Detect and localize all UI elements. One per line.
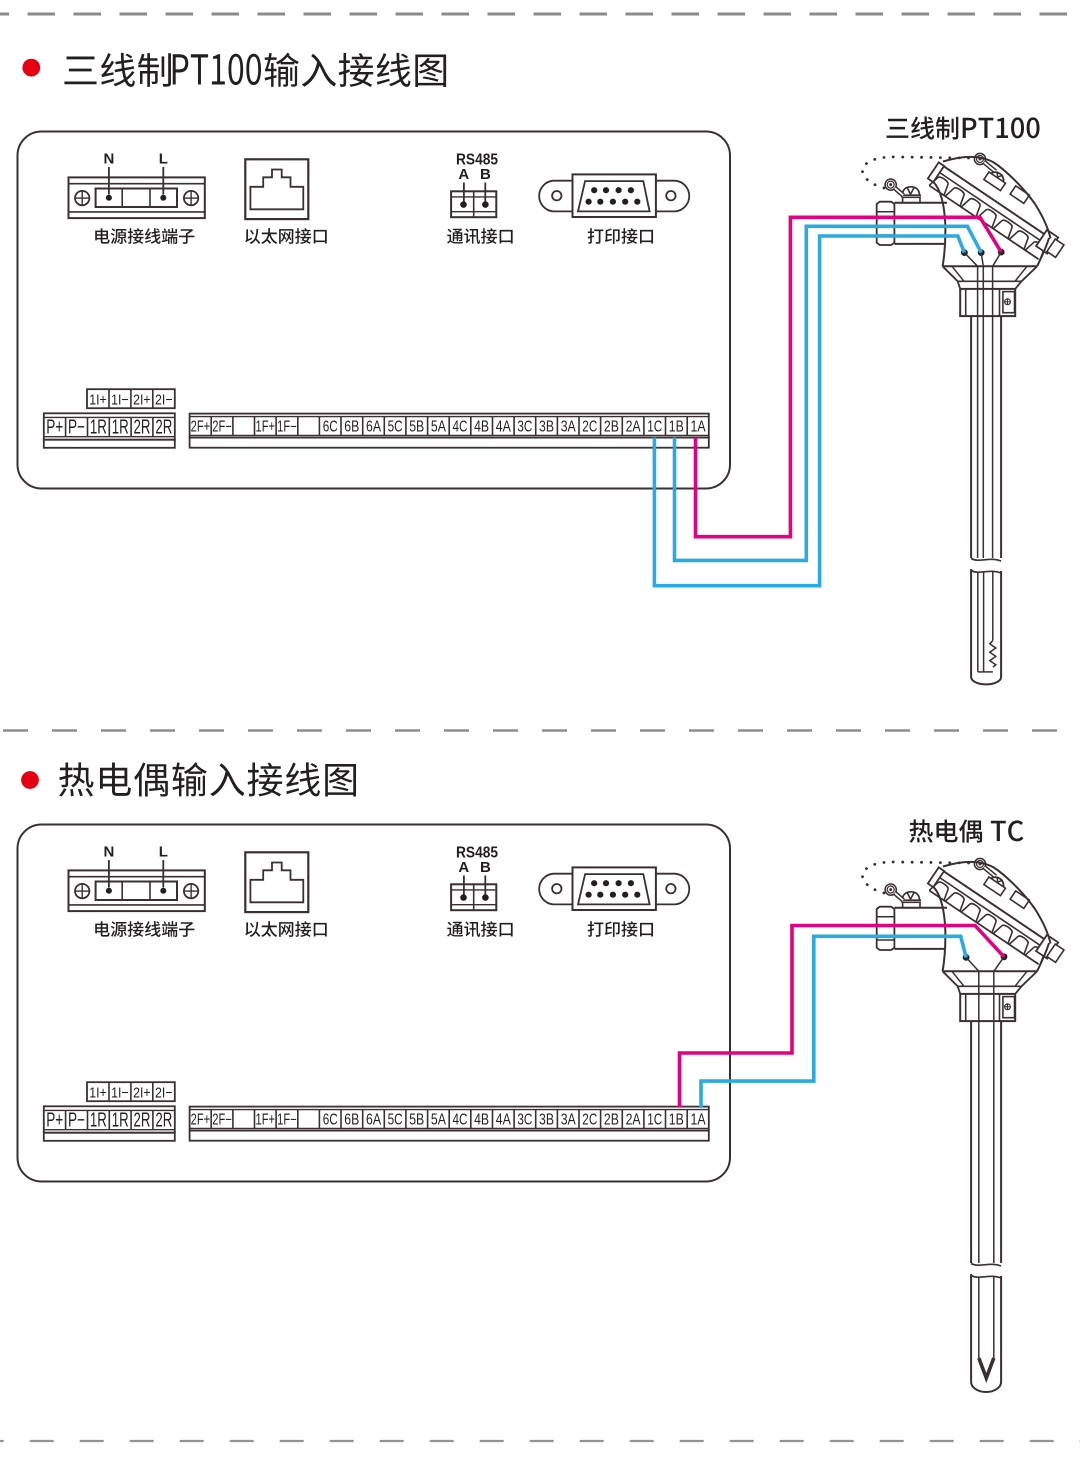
svg-text:1F+: 1F+ [256, 419, 276, 436]
svg-text:A: A [458, 166, 469, 183]
svg-text:6B: 6B [344, 419, 359, 436]
svg-text:2I+: 2I+ [133, 391, 151, 408]
svg-text:6C: 6C [323, 419, 338, 436]
svg-text:2I−: 2I− [155, 391, 173, 408]
svg-text:2I−: 2I− [155, 1084, 173, 1101]
svg-text:2F+: 2F+ [191, 1112, 211, 1129]
svg-text:1B: 1B [669, 419, 684, 436]
svg-text:5B: 5B [409, 1112, 424, 1129]
svg-text:2R: 2R [155, 417, 172, 439]
svg-text:3B: 3B [539, 1112, 554, 1129]
svg-text:2I+: 2I+ [133, 1084, 151, 1101]
svg-text:2C: 2C [582, 419, 597, 436]
svg-text:P+: P+ [46, 1110, 63, 1132]
svg-text:1C: 1C [647, 1112, 662, 1129]
svg-text:1I−: 1I− [111, 391, 129, 408]
svg-text:5B: 5B [409, 419, 424, 436]
svg-text:N: N [103, 151, 114, 168]
svg-text:5A: 5A [431, 419, 447, 436]
svg-text:5A: 5A [431, 1112, 447, 1129]
svg-text:2A: 2A [626, 1112, 642, 1129]
svg-text:1F−: 1F− [277, 1112, 297, 1129]
svg-text:1I+: 1I+ [89, 1084, 107, 1101]
svg-text:6C: 6C [323, 1112, 338, 1129]
svg-text:6B: 6B [344, 1112, 359, 1129]
svg-text:4A: 4A [496, 1112, 512, 1129]
svg-text:B: B [480, 859, 491, 876]
svg-text:2F−: 2F− [212, 1112, 232, 1129]
svg-text:1A: 1A [691, 419, 707, 436]
svg-text:5C: 5C [388, 419, 403, 436]
svg-text:2F−: 2F− [212, 419, 232, 436]
svg-text:1C: 1C [647, 419, 662, 436]
svg-text:4B: 4B [474, 1112, 489, 1129]
svg-text:4C: 4C [453, 419, 468, 436]
svg-text:6A: 6A [366, 419, 382, 436]
svg-text:1R: 1R [90, 417, 107, 439]
svg-text:1B: 1B [669, 1112, 684, 1129]
svg-text:P−: P− [68, 417, 85, 439]
svg-text:2B: 2B [604, 1112, 619, 1129]
svg-text:L: L [159, 151, 168, 168]
svg-text:1R: 1R [90, 1110, 107, 1132]
svg-text:2C: 2C [582, 1112, 597, 1129]
svg-text:2A: 2A [626, 419, 642, 436]
svg-text:3C: 3C [517, 419, 532, 436]
svg-text:3B: 3B [539, 419, 554, 436]
svg-text:4A: 4A [496, 419, 512, 436]
svg-text:B: B [480, 166, 491, 183]
svg-text:4B: 4B [474, 419, 489, 436]
svg-text:1I+: 1I+ [89, 391, 107, 408]
svg-text:2F+: 2F+ [191, 419, 211, 436]
svg-text:6A: 6A [366, 1112, 382, 1129]
svg-text:P−: P− [68, 1110, 85, 1132]
svg-text:1A: 1A [691, 1112, 707, 1129]
svg-text:2R: 2R [134, 1110, 151, 1132]
svg-text:2R: 2R [155, 1110, 172, 1132]
svg-text:5C: 5C [388, 1112, 403, 1129]
svg-text:L: L [159, 844, 168, 861]
svg-text:1R: 1R [112, 417, 129, 439]
svg-text:N: N [103, 844, 114, 861]
svg-text:2B: 2B [604, 419, 619, 436]
svg-text:1I−: 1I− [111, 1084, 129, 1101]
svg-text:A: A [458, 859, 469, 876]
svg-text:2R: 2R [134, 417, 151, 439]
svg-text:P+: P+ [46, 417, 63, 439]
svg-text:3C: 3C [517, 1112, 532, 1129]
svg-text:3A: 3A [561, 419, 577, 436]
svg-text:4C: 4C [453, 1112, 468, 1129]
svg-text:1F+: 1F+ [256, 1112, 276, 1129]
svg-text:3A: 3A [561, 1112, 577, 1129]
svg-text:1R: 1R [112, 1110, 129, 1132]
svg-text:1F−: 1F− [277, 419, 297, 436]
